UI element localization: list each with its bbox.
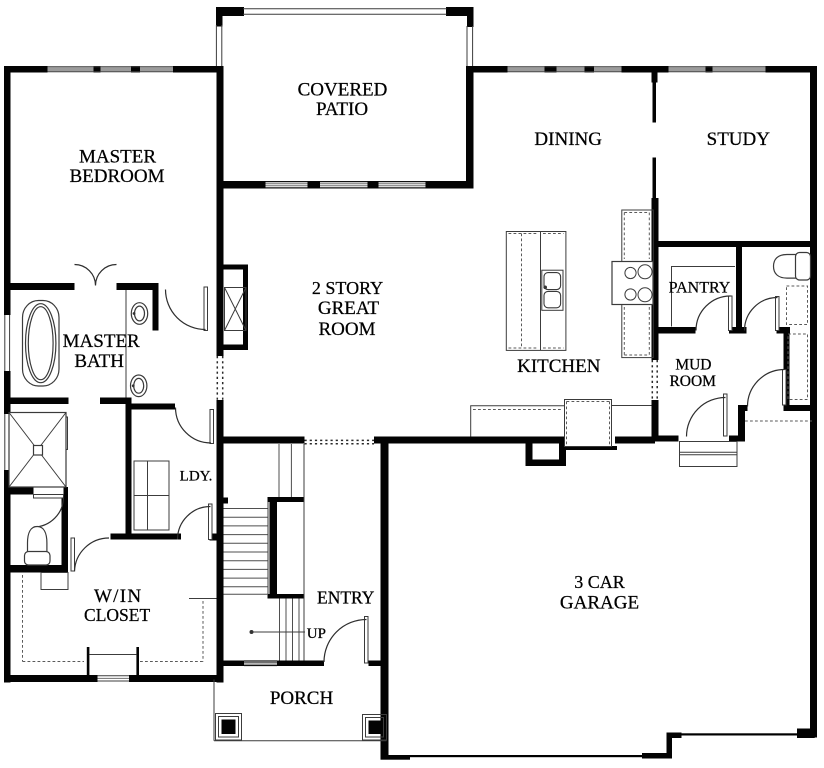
svg-text:2 STORY: 2 STORY xyxy=(312,278,383,298)
svg-text:ROOM: ROOM xyxy=(318,319,375,340)
svg-text:W/IN: W/IN xyxy=(94,586,142,607)
svg-text:MASTER: MASTER xyxy=(63,331,140,352)
svg-text:PORCH: PORCH xyxy=(270,688,334,709)
svg-text:UP: UP xyxy=(307,626,326,642)
svg-text:MUD: MUD xyxy=(675,356,711,373)
svg-text:MASTER: MASTER xyxy=(79,147,156,168)
svg-text:LDY.: LDY. xyxy=(180,469,213,485)
svg-text:KITCHEN: KITCHEN xyxy=(517,356,601,377)
svg-text:STUDY: STUDY xyxy=(707,129,771,150)
svg-text:CLOSET: CLOSET xyxy=(84,605,150,625)
svg-text:DINING: DINING xyxy=(534,129,602,150)
svg-text:ENTRY: ENTRY xyxy=(317,588,375,608)
svg-text:GARAGE: GARAGE xyxy=(560,593,639,614)
svg-text:COVERED: COVERED xyxy=(298,80,388,101)
svg-text:PANTRY: PANTRY xyxy=(669,280,731,297)
svg-text:BATH: BATH xyxy=(74,351,124,372)
svg-text:BEDROOM: BEDROOM xyxy=(69,166,164,187)
svg-text:PATIO: PATIO xyxy=(316,99,368,120)
svg-text:ROOM: ROOM xyxy=(669,373,716,390)
svg-text:GREAT: GREAT xyxy=(318,298,380,319)
svg-text:3 CAR: 3 CAR xyxy=(574,572,625,592)
